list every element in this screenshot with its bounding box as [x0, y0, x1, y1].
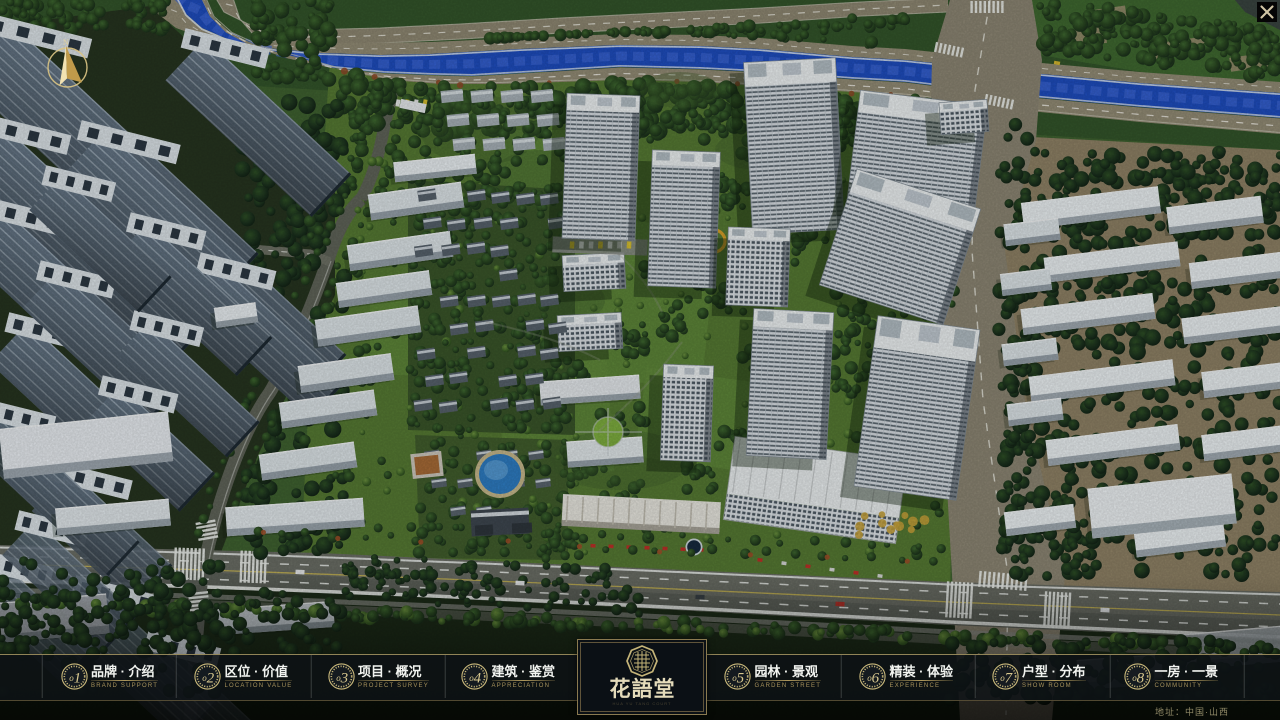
- svg-text:N: N: [63, 38, 69, 47]
- svg-text:8: 8: [1137, 671, 1145, 687]
- svg-text:5: 5: [737, 671, 745, 687]
- svg-text:6: 6: [872, 671, 880, 687]
- svg-text:3: 3: [339, 671, 348, 687]
- svg-text:4: 4: [474, 671, 482, 687]
- svg-text:1: 1: [73, 671, 81, 687]
- svg-text:2: 2: [207, 671, 215, 687]
